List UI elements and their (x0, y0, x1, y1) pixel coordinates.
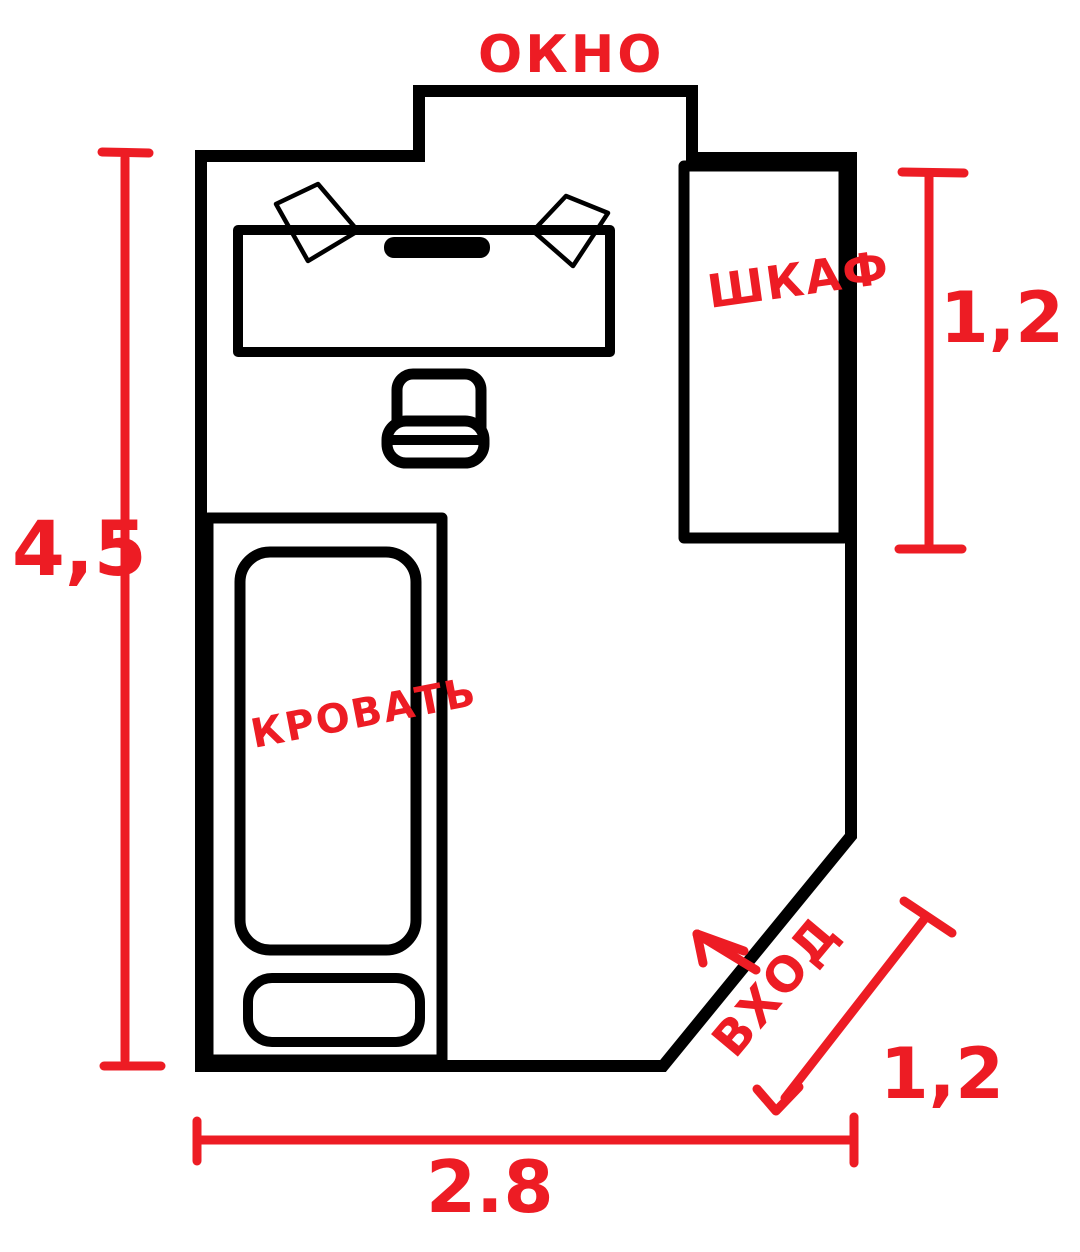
monitor (384, 237, 490, 258)
bed-footboard (248, 978, 420, 1042)
dimension-entrance-tick-bottom (757, 1087, 799, 1111)
floor-plan-canvas: ОКНО ШКАФ КРОВАТЬ ВХОД 4,5 1,2 (0, 0, 1080, 1252)
floor-plan-drawing: ОКНО ШКАФ КРОВАТЬ ВХОД 4,5 1,2 (0, 0, 1080, 1252)
wardrobe-label: ШКАФ (704, 240, 893, 319)
dimension-wardrobe: 1,2 (899, 172, 1064, 549)
dimension-wardrobe-value: 1,2 (940, 277, 1064, 359)
wardrobe (684, 166, 844, 538)
dimension-left-wall: 4,5 (12, 152, 161, 1066)
room-walls-outline (201, 91, 851, 1066)
speaker-left (276, 184, 358, 261)
chair (387, 374, 484, 463)
bed (208, 518, 442, 1060)
dimension-left-value: 4,5 (12, 504, 147, 593)
dimension-entrance-tick-top (904, 901, 952, 933)
dimension-wardrobe-tick-top (902, 172, 964, 173)
dimension-left-tick-top (102, 152, 149, 153)
dimension-bottom-value: 2.8 (426, 1145, 554, 1229)
entrance-arrow-icon (697, 934, 756, 970)
dimension-entrance-value: 1,2 (880, 1033, 1004, 1115)
window-label: ОКНО (478, 25, 664, 85)
dimension-bottom-wall: 2.8 (197, 1117, 854, 1229)
